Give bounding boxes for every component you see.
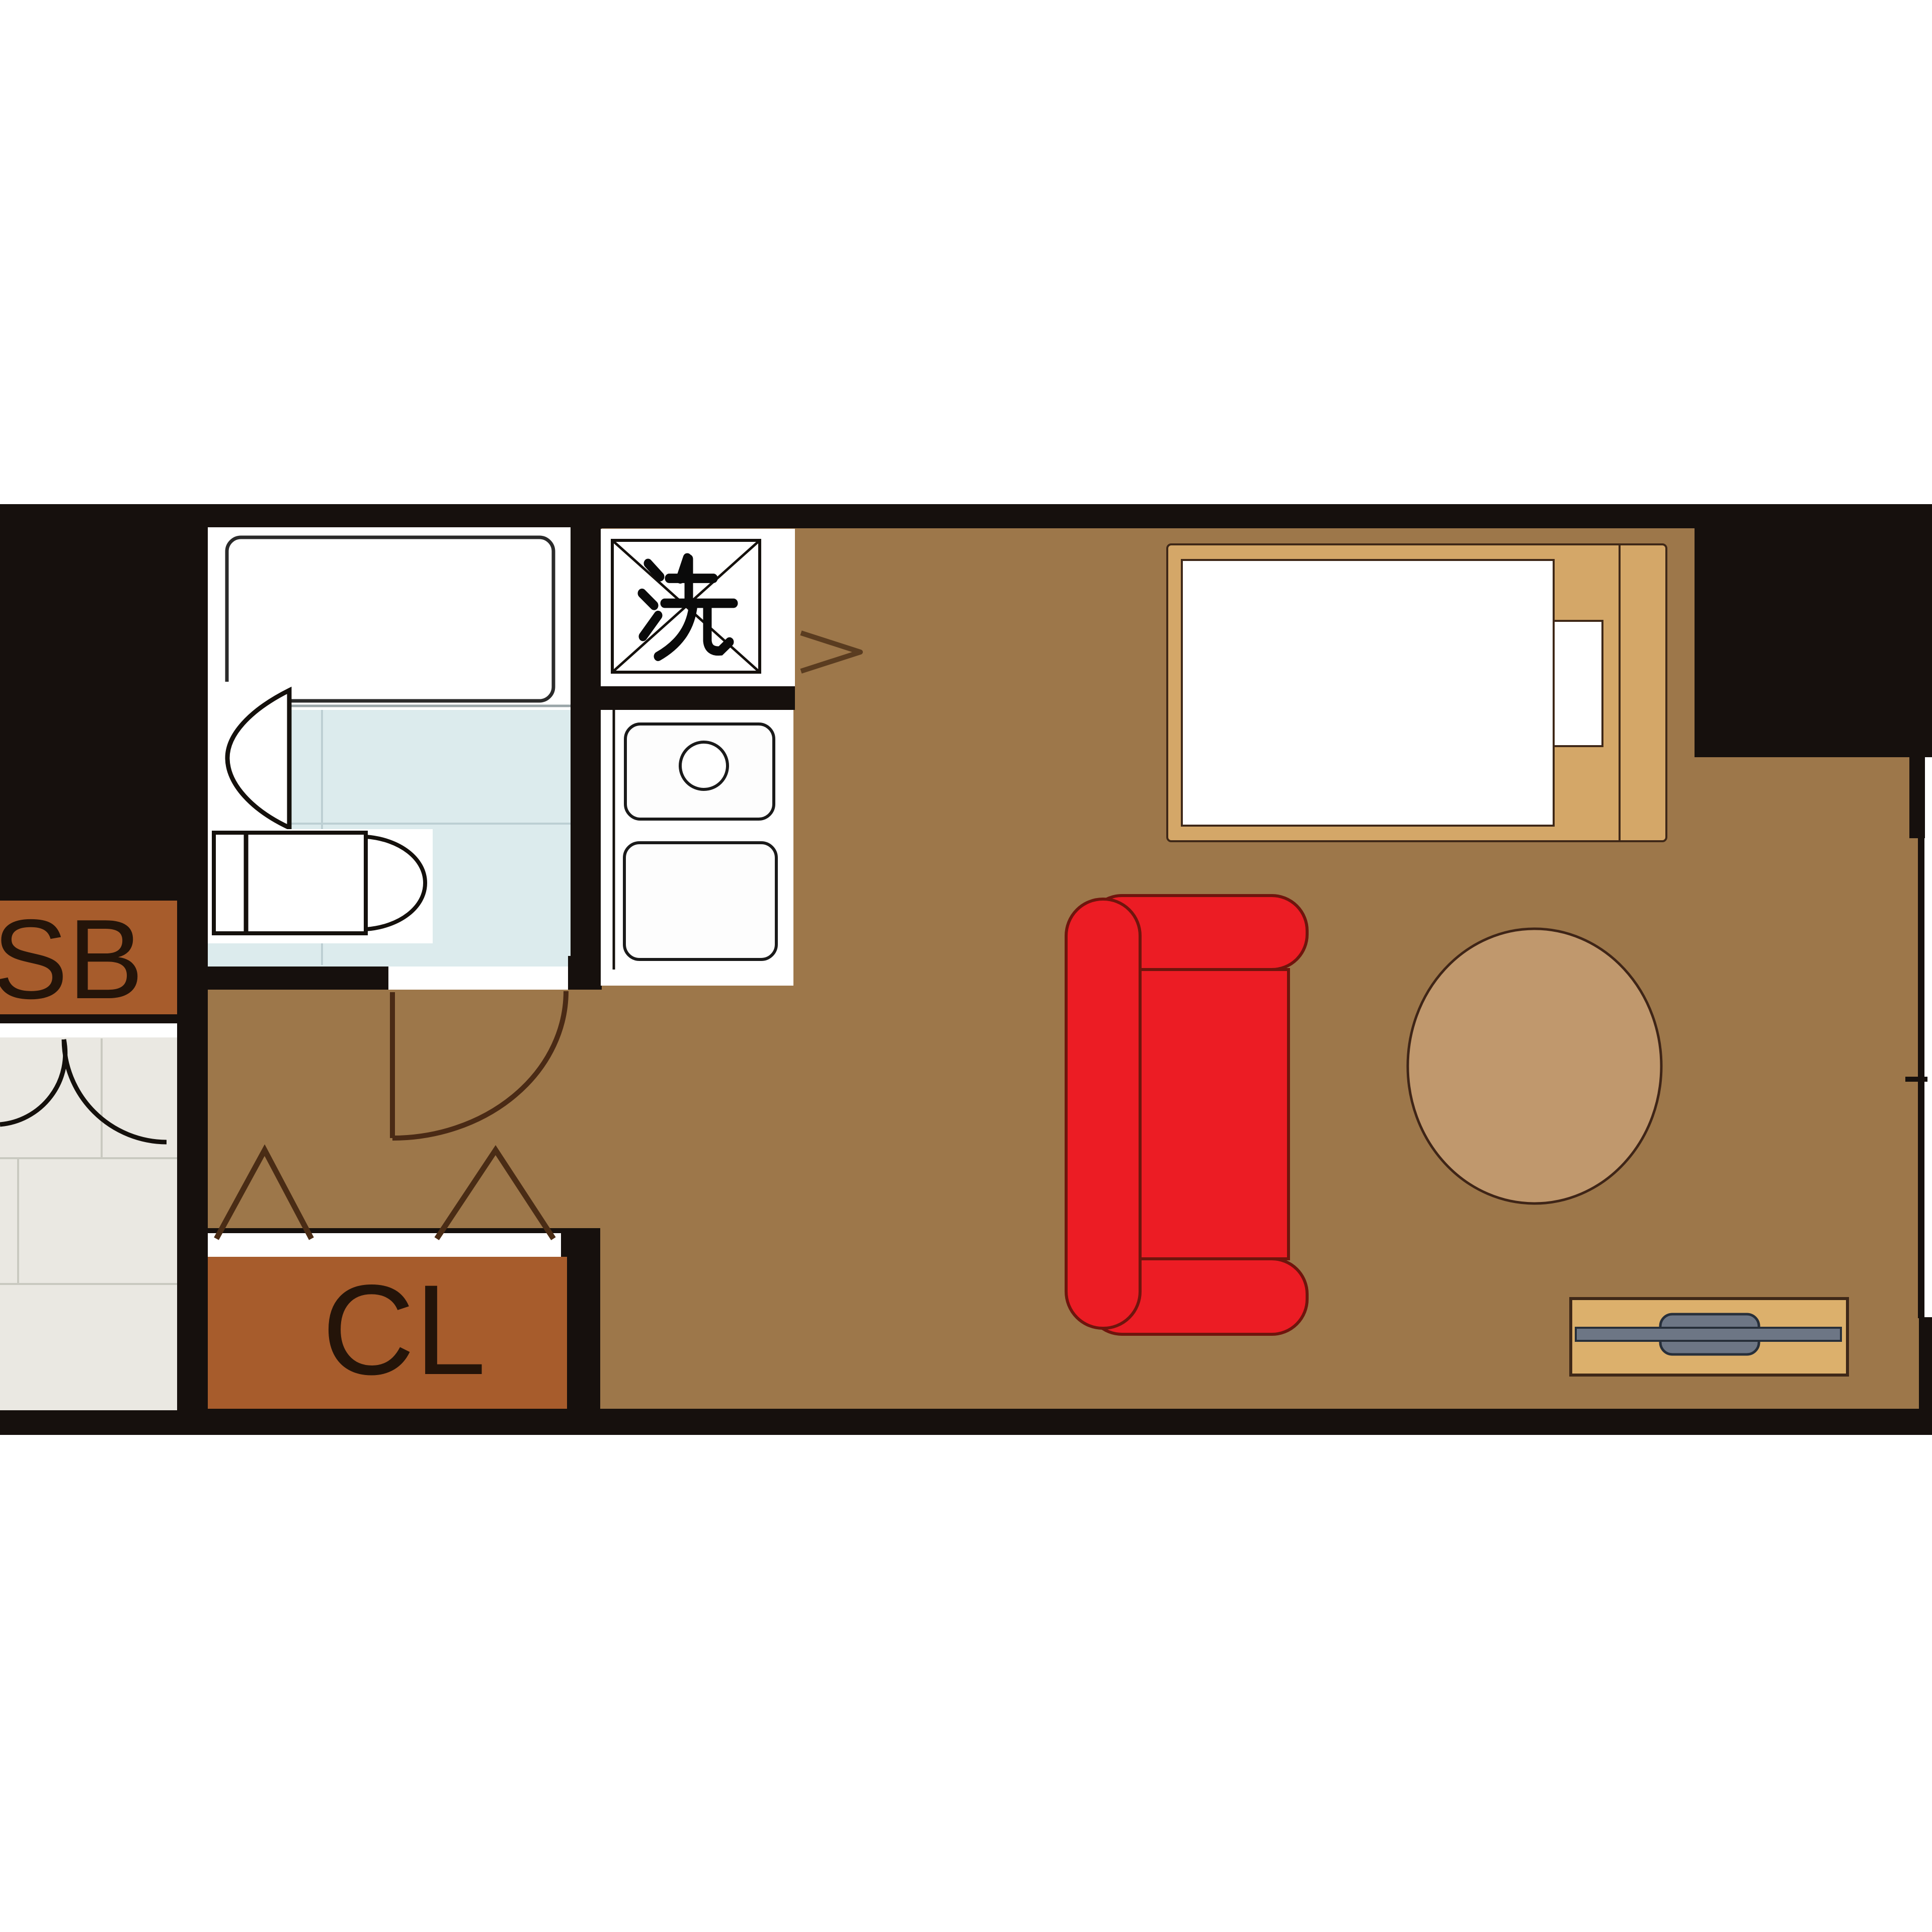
svg-text:CL: CL [322, 1258, 486, 1402]
svg-text:SB: SB [0, 896, 143, 1022]
